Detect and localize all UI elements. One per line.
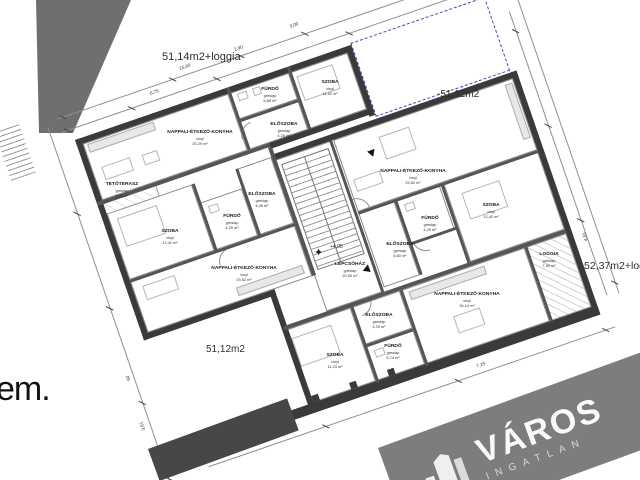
floor-plan-canvas: 6,75 15,60 2,90 3,00 3,61 60 4,41 7,15 N… xyxy=(0,0,640,480)
area-label-apartment-b: 51,12m2 xyxy=(206,344,245,355)
dim-label: 7,15 xyxy=(476,361,486,369)
dim-label: 15,60 xyxy=(179,62,192,70)
area-label-apartment-d: 52,37m2+loggia xyxy=(584,260,640,272)
dim-label: 3,00 xyxy=(289,21,299,29)
neighbor-building-mass xyxy=(0,0,150,136)
brand-buildings-icon xyxy=(418,443,475,480)
area-label-apartment-c: -51,12m2 xyxy=(437,89,479,100)
dim-label: 3,61 xyxy=(138,421,146,431)
building-plan: 6,75 15,60 2,90 3,00 3,61 60 4,41 7,15 xyxy=(75,0,602,461)
dim-label: 60 xyxy=(125,375,131,381)
area-label-apartment-a: 51,14m2+loggia xyxy=(162,51,241,63)
dim-label: 4,41 xyxy=(581,232,589,242)
floor-label: em. xyxy=(0,370,50,409)
compass-star-icon: ✦ xyxy=(314,246,323,259)
dim-label: 6,75 xyxy=(149,88,159,96)
exterior-stair-hatch xyxy=(0,123,36,181)
level-mark: +4,05 xyxy=(330,244,343,250)
